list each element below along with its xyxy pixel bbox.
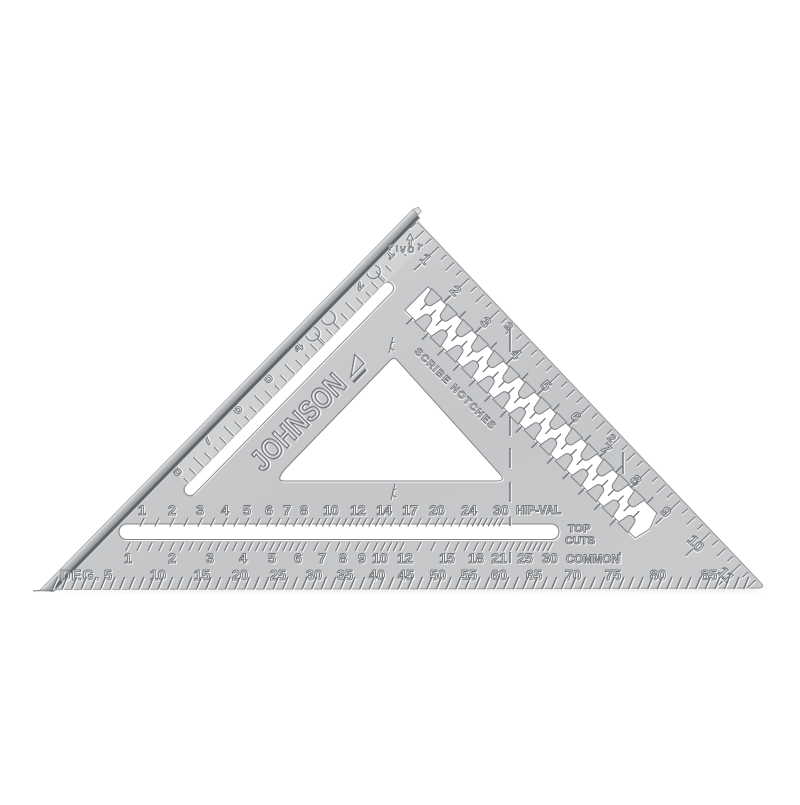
svg-text:CUTS: CUTS: [565, 535, 595, 547]
svg-text:4: 4: [221, 502, 229, 518]
svg-text:2: 2: [168, 550, 176, 566]
svg-text:30: 30: [493, 502, 509, 518]
svg-text:20: 20: [232, 568, 248, 584]
svg-text:65: 65: [526, 568, 542, 584]
svg-text:12: 12: [397, 550, 413, 566]
svg-text:1: 1: [124, 550, 132, 566]
svg-text:20: 20: [429, 502, 445, 518]
svg-text:18: 18: [468, 550, 484, 566]
svg-text:30: 30: [542, 550, 558, 566]
svg-text:3: 3: [206, 550, 214, 566]
svg-text:6: 6: [265, 502, 273, 518]
svg-text:21: 21: [491, 550, 507, 566]
svg-text:3: 3: [196, 502, 204, 518]
svg-text:45: 45: [398, 568, 414, 584]
svg-text:15: 15: [439, 550, 455, 566]
svg-text:70: 70: [565, 568, 581, 584]
svg-text:5: 5: [268, 550, 276, 566]
svg-text:14: 14: [376, 502, 392, 518]
svg-text:8: 8: [339, 550, 347, 566]
svg-text:10: 10: [372, 550, 388, 566]
svg-text:6: 6: [294, 550, 302, 566]
svg-text:12: 12: [350, 502, 366, 518]
svg-text:15: 15: [194, 568, 210, 584]
svg-text:TOP: TOP: [568, 523, 590, 535]
svg-text:1: 1: [138, 502, 146, 518]
svg-text:80: 80: [650, 568, 666, 584]
svg-text:25: 25: [270, 568, 286, 584]
svg-text:10: 10: [323, 502, 339, 518]
svg-text:COMMON: COMMON: [566, 554, 620, 566]
svg-text:5: 5: [243, 502, 251, 518]
svg-text:24: 24: [461, 502, 477, 518]
svg-text:2: 2: [168, 502, 176, 518]
svg-text:8: 8: [300, 502, 308, 518]
svg-text:50: 50: [430, 568, 446, 584]
svg-text:17: 17: [402, 502, 418, 518]
svg-text:9: 9: [358, 550, 366, 566]
svg-text:60: 60: [491, 568, 507, 584]
svg-text:4: 4: [239, 550, 247, 566]
svg-text:35: 35: [337, 568, 353, 584]
svg-text:HIP-VAL: HIP-VAL: [516, 505, 561, 517]
svg-text:25: 25: [517, 550, 533, 566]
svg-text:V: V: [400, 245, 406, 255]
svg-text:7: 7: [283, 502, 291, 518]
svg-text:7: 7: [318, 550, 326, 566]
svg-text:5: 5: [104, 568, 112, 584]
